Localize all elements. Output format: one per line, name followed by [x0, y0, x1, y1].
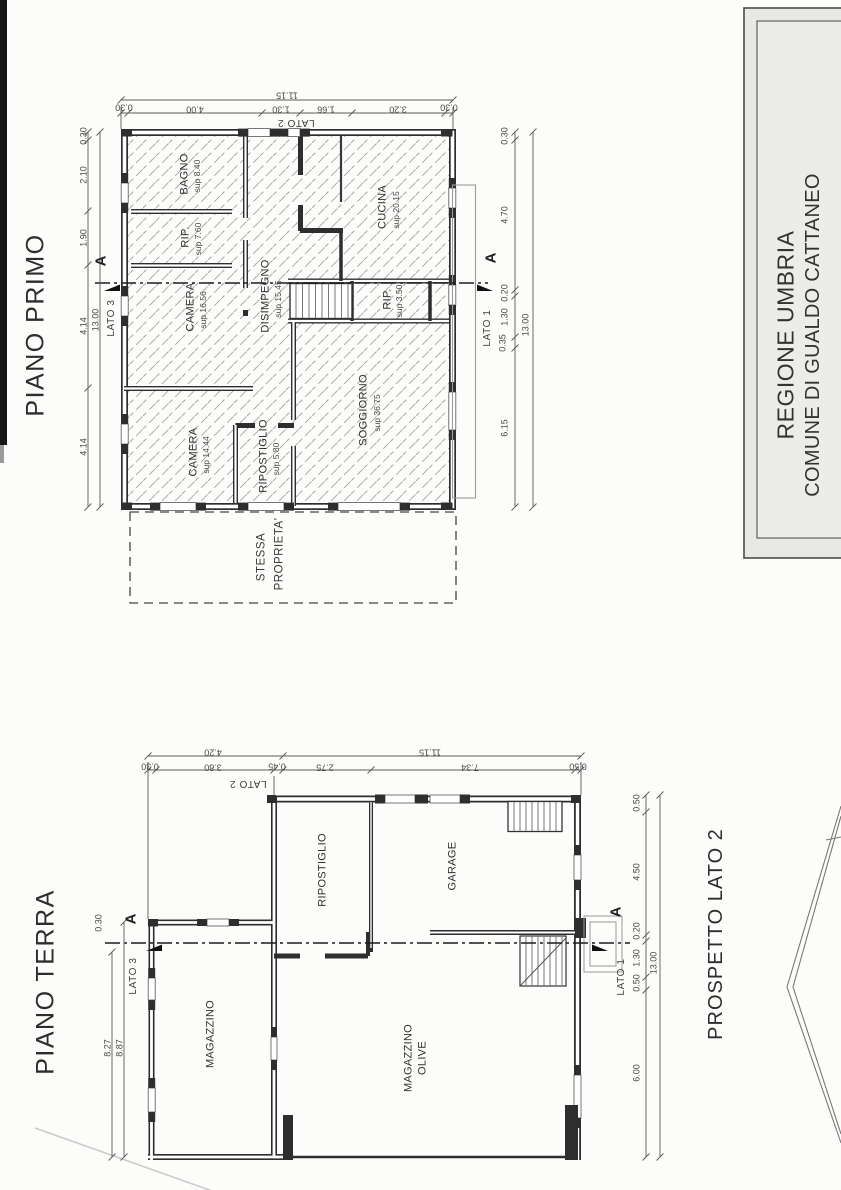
dim-pt-right-2: 0.20: [633, 922, 642, 940]
room-sup-bagno: sup 8.40: [193, 160, 202, 193]
dim-pp-left-0: 0.30: [80, 127, 89, 145]
label-pp-lato2: LATO 2: [277, 117, 314, 127]
dim-pt-left-wall: 0.30: [95, 914, 104, 932]
dim-pp-left-total: 13.00: [92, 309, 101, 332]
dim-pt-top-5: 0.50: [569, 762, 587, 771]
dim-pp-right-5: 6.15: [501, 419, 510, 437]
room-label-magazzino: MAGAZZINO: [206, 1000, 217, 1068]
piano-primo-title: PIANO PRIMO: [24, 233, 49, 416]
section-marker-flag: [104, 285, 120, 292]
room-label-soggiorno: SOGGIORNO: [359, 374, 370, 446]
label-pt-lato2: LATO 2: [229, 778, 266, 788]
dim-pp-right-0: 0.30: [501, 127, 510, 145]
room-sup-soggiorno: sup 36.75: [373, 394, 382, 431]
dim-pt-top-4: 7.34: [461, 763, 479, 772]
room-sup-camera-nord: sup 16.56: [199, 291, 208, 328]
label-pp-lato3: LATO 3: [107, 299, 117, 336]
dim-pt-right-total: 13.00: [650, 952, 659, 975]
prospetto-roof-outline: [787, 806, 841, 1143]
piano-terra-walls: [148, 796, 581, 1161]
label-stessa-line2: PROPRIETA': [274, 518, 286, 591]
label-pt-lato1: LATO 1: [617, 958, 627, 995]
dim-pp-left-2: 1.90: [80, 229, 89, 247]
dim-pp-top-4: 3.20: [389, 105, 407, 114]
title-block-comune: COMUNE DI GUALDO CATTANEO: [803, 173, 823, 496]
room-sup-rip-nord: sup 7.60: [194, 223, 203, 256]
title-block-region: REGIONE UMBRIA: [775, 231, 798, 440]
dim-pt-left-inner: 8.27: [104, 1039, 113, 1057]
room-label-garage: GARAGE: [448, 842, 459, 891]
label-pp-lato1: LATO 1: [483, 309, 493, 346]
dim-pt-right-5: 6.00: [633, 1064, 642, 1082]
dim-pt-right-4: 0.50: [633, 974, 642, 992]
room-label-magazzino-olive-2: OLIVE: [418, 1041, 429, 1075]
piano-terra-plan: [105, 753, 664, 1161]
scanned-plan-page: PIANO PRIMO PIANO TERRA PROSPETTO LATO 2…: [0, 0, 841, 1190]
dim-pp-right-4: 0.35: [499, 334, 508, 352]
room-sup-ripostiglio-p1: sup 5.80: [272, 443, 281, 476]
dim-pp-top-0: 0.30: [115, 103, 133, 112]
section-marker-flag: [477, 285, 493, 292]
dim-pt-top-total: 11.15: [419, 748, 441, 757]
dim-pt-right-0: 0.50: [633, 794, 642, 812]
stessa-proprieta-boundary: [130, 512, 456, 603]
room-sup-camera-sud: sup 14.44: [202, 436, 211, 473]
dim-pt-top-left-total: 4.20: [204, 748, 222, 757]
dim-pp-top-total: 11.15: [276, 91, 298, 100]
room-sup-disimpegno: sup 15.45: [274, 280, 283, 317]
room-label-bagno: BAGNO: [180, 153, 191, 194]
section-letter-pt-right: A: [609, 907, 624, 918]
room-label-ripostiglio-p1: RIPOSTIGLIO: [259, 419, 270, 493]
room-sup-rip-scala: sup 3.50: [395, 285, 404, 318]
room-label-camera-sud: CAMERA: [189, 428, 200, 477]
label-stessa-line1: STESSA: [256, 533, 268, 581]
room-sup-cucina: sup 20.15: [392, 191, 401, 228]
dim-pp-left-3: 4.14: [80, 317, 89, 335]
dim-pp-right-total: 13.00: [522, 314, 531, 337]
dim-pp-top-1: 4.00: [186, 105, 204, 114]
dim-pt-top-3: 2.75: [316, 763, 334, 772]
dim-pp-right-3: 1.30: [501, 308, 510, 326]
piano-primo-plan: [85, 97, 537, 604]
room-label-rip-scala: RIP.: [383, 288, 394, 309]
dim-pt-top-1: 3.80: [204, 763, 222, 772]
dim-pt-right-1: 4.50: [633, 863, 642, 881]
label-pt-lato3: LATO 3: [129, 957, 139, 994]
prospetto-title: PROSPETTO LATO 2: [706, 828, 726, 1040]
dim-pt-top-0: 0.30: [141, 762, 159, 771]
piano-terra-title: PIANO TERRA: [34, 889, 59, 1075]
dim-pp-left-1: 2.10: [80, 166, 89, 184]
dim-pt-left-outer: 8.87: [116, 1039, 125, 1057]
piano-terra-stairs-top: [508, 802, 562, 832]
section-letter-pp-left: A: [94, 256, 109, 267]
room-label-magazzino-olive-1: MAGAZZINO: [404, 1024, 415, 1092]
dim-pt-top-2: 0.45: [268, 762, 286, 771]
piano-primo-stairs: [290, 284, 352, 319]
dim-pp-left-4: 4.14: [80, 438, 89, 456]
dim-pp-right-2: 0.20: [501, 284, 510, 302]
section-letter-pp-right: A: [484, 253, 499, 264]
room-label-ripostiglio-pt: RIPOSTIGLIO: [318, 833, 329, 907]
dim-pp-top-5: 0.30: [440, 103, 458, 112]
room-label-rip-nord: RIP.: [181, 226, 192, 247]
section-letter-pt-left: A: [124, 914, 139, 925]
dim-pp-right-1: 4.70: [501, 206, 510, 224]
room-label-disimpegno: DISIMPEGNO: [261, 259, 272, 332]
room-label-cucina: CUCINA: [378, 185, 389, 229]
room-label-camera-nord: CAMERA: [186, 283, 197, 332]
section-marker-flag: [592, 945, 608, 952]
dim-pp-top-2: 1.30: [272, 105, 290, 114]
dim-pp-top-3: 1.66: [317, 105, 335, 114]
dim-pt-right-3: 1.30: [633, 949, 642, 967]
